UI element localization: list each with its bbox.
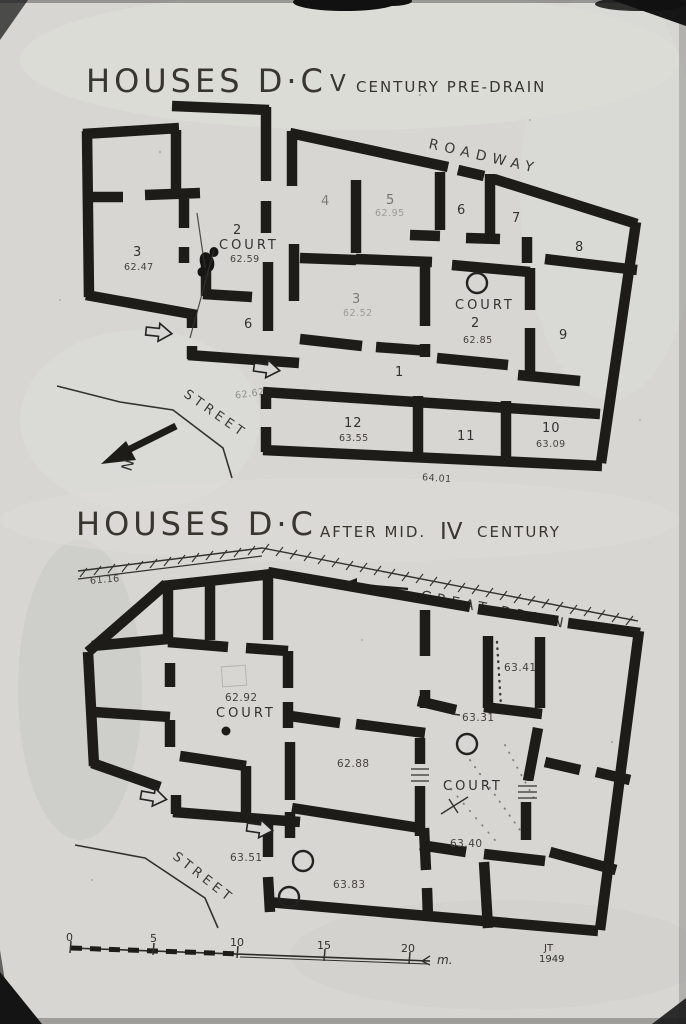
c-room10: 10 bbox=[542, 421, 561, 436]
scale-tick-5: 5 bbox=[150, 932, 157, 945]
lc-court-label: COURT bbox=[443, 779, 503, 794]
c-room3-elev: 62.52 bbox=[343, 308, 373, 319]
c-room12-elev: 63.55 bbox=[339, 433, 369, 444]
upper-era-text: CENTURY PRE-DRAIN bbox=[356, 78, 546, 96]
d-court-no: 2 bbox=[233, 223, 242, 238]
scale-tick-15: 15 bbox=[317, 939, 331, 952]
d-room6: 6 bbox=[244, 317, 253, 332]
d-court-elev: 62.59 bbox=[230, 254, 260, 265]
scale-tick-20: 20 bbox=[401, 942, 415, 955]
lc-court-elev: 63.40 bbox=[450, 838, 483, 850]
ld-court-label: COURT bbox=[216, 706, 276, 721]
lc-ne-elev: 63.41 bbox=[504, 662, 537, 674]
upper-title: HOUSES D·C bbox=[86, 62, 327, 100]
scale-tick-10: 10 bbox=[230, 936, 244, 949]
c-room5: 5 bbox=[386, 193, 395, 208]
c-room8: 8 bbox=[575, 240, 584, 255]
elev-tick bbox=[452, 714, 460, 715]
c-room12: 12 bbox=[344, 416, 363, 431]
lower-era-suffix: CENTURY bbox=[477, 523, 561, 541]
c-court-no: 2 bbox=[471, 316, 480, 331]
c-room11: 11 bbox=[457, 429, 476, 444]
c-room10-elev: 63.09 bbox=[536, 439, 566, 450]
c-room5-elev: 62.95 bbox=[375, 208, 405, 219]
signature-initials: JT bbox=[543, 943, 554, 954]
lc-entry-elev: 63.51 bbox=[230, 852, 263, 864]
c-room6: 6 bbox=[457, 203, 466, 218]
c-room7: 7 bbox=[512, 211, 521, 226]
plan-photograph: HOUSES D·C V CENTURY PRE-DRAIN ROADWAY 3… bbox=[0, 0, 686, 1024]
c-room9: 9 bbox=[559, 328, 568, 343]
d-room3: 3 bbox=[133, 245, 142, 260]
c-court-label: COURT bbox=[455, 298, 515, 313]
door-threshold-west bbox=[411, 764, 429, 785]
c-room1: 1 bbox=[395, 365, 404, 380]
d-court-label: COURT bbox=[219, 238, 279, 253]
c-room4: 4 bbox=[321, 194, 330, 209]
c-court-elev: 62.85 bbox=[463, 335, 493, 346]
signature-year: 1949 bbox=[539, 954, 564, 965]
scale-unit: m. bbox=[437, 953, 453, 967]
lc-mid-elev: 63.31 bbox=[462, 712, 495, 724]
plan-drawing-canvas: HOUSES D·C V CENTURY PRE-DRAIN ROADWAY 3… bbox=[0, 0, 686, 1024]
lower-era-prefix: AFTER MID. bbox=[320, 523, 426, 541]
d-room3-elev: 62.47 bbox=[124, 262, 154, 273]
upper-era-numeral: V bbox=[330, 71, 346, 97]
lower-title: HOUSES D·C bbox=[76, 505, 317, 543]
c-room3: 3 bbox=[352, 292, 361, 307]
lower-era-numeral: IV bbox=[440, 519, 463, 545]
ld-court-elev: 62.92 bbox=[225, 692, 258, 704]
scale-tick-0: 0 bbox=[66, 931, 73, 944]
column-base-dot bbox=[222, 727, 231, 736]
c-south-elev: 64.01 bbox=[422, 472, 452, 485]
lc-west-elev: 62.88 bbox=[337, 758, 370, 770]
lc-south-elev: 63.83 bbox=[333, 879, 366, 891]
